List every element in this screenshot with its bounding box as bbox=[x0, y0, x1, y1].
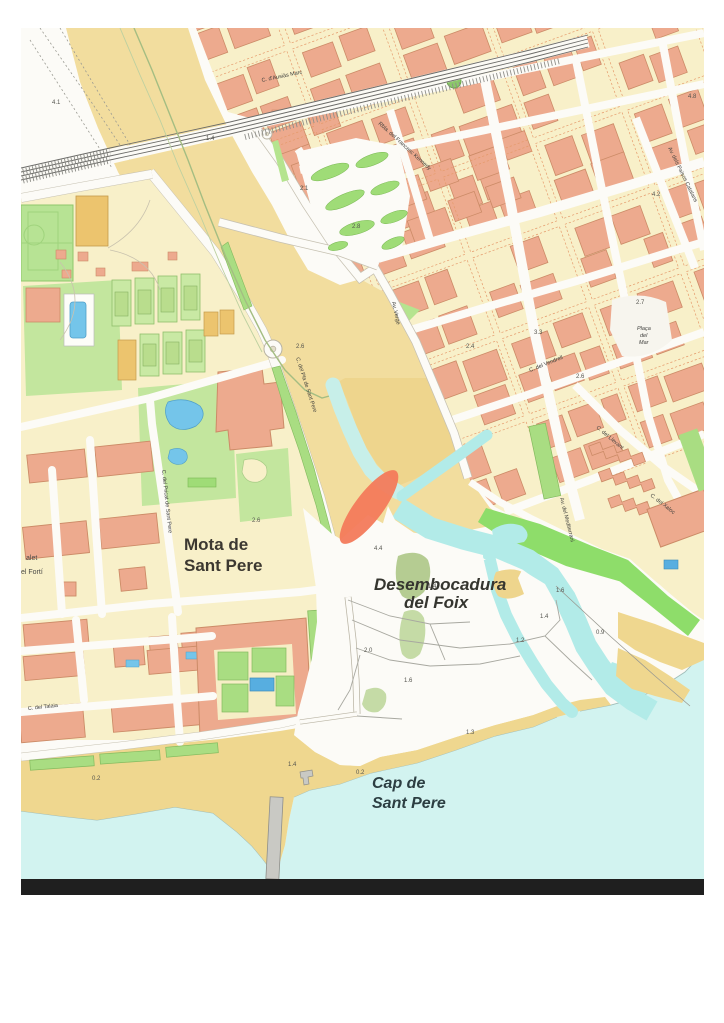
svg-text:0.2: 0.2 bbox=[356, 770, 365, 776]
svg-text:alet: alet bbox=[26, 555, 37, 562]
svg-text:2.7: 2.7 bbox=[636, 300, 645, 306]
svg-text:2.0: 2.0 bbox=[364, 648, 373, 654]
svg-text:Sant Pere: Sant Pere bbox=[184, 556, 262, 575]
svg-text:Cap de: Cap de bbox=[372, 775, 425, 792]
svg-text:4.8: 4.8 bbox=[688, 94, 697, 100]
svg-text:Desembocadura: Desembocadura bbox=[374, 575, 506, 594]
svg-text:1.6: 1.6 bbox=[404, 678, 413, 684]
svg-text:Mar: Mar bbox=[639, 340, 650, 346]
svg-text:del Foix: del Foix bbox=[404, 593, 470, 612]
svg-text:Plaça: Plaça bbox=[637, 326, 651, 332]
svg-text:4.1: 4.1 bbox=[52, 100, 61, 106]
svg-text:4.2: 4.2 bbox=[652, 192, 661, 198]
svg-text:2.6: 2.6 bbox=[576, 374, 585, 380]
svg-text:1.4: 1.4 bbox=[288, 762, 297, 768]
svg-text:2.6: 2.6 bbox=[296, 344, 305, 350]
svg-text:Sant Pere: Sant Pere bbox=[372, 795, 446, 812]
svg-text:1.6: 1.6 bbox=[556, 588, 565, 594]
svg-text:1.4: 1.4 bbox=[206, 136, 215, 142]
svg-text:1.3: 1.3 bbox=[466, 730, 475, 736]
svg-text:del: del bbox=[640, 333, 648, 339]
svg-text:1.4: 1.4 bbox=[540, 614, 549, 620]
svg-text:1.4: 1.4 bbox=[428, 584, 437, 590]
svg-text:3.3: 3.3 bbox=[534, 330, 543, 336]
svg-text:2.6: 2.6 bbox=[252, 518, 261, 524]
svg-text:4.4: 4.4 bbox=[374, 546, 383, 552]
svg-text:2.4: 2.4 bbox=[466, 344, 475, 350]
svg-text:Mota de: Mota de bbox=[184, 535, 248, 554]
svg-text:2.1: 2.1 bbox=[300, 186, 309, 192]
svg-text:1.2: 1.2 bbox=[516, 638, 525, 644]
svg-text:0.2: 0.2 bbox=[92, 776, 101, 782]
svg-text:2.8: 2.8 bbox=[352, 224, 361, 230]
svg-text:0.9: 0.9 bbox=[596, 630, 605, 636]
svg-text:el Fortí: el Fortí bbox=[21, 569, 43, 576]
